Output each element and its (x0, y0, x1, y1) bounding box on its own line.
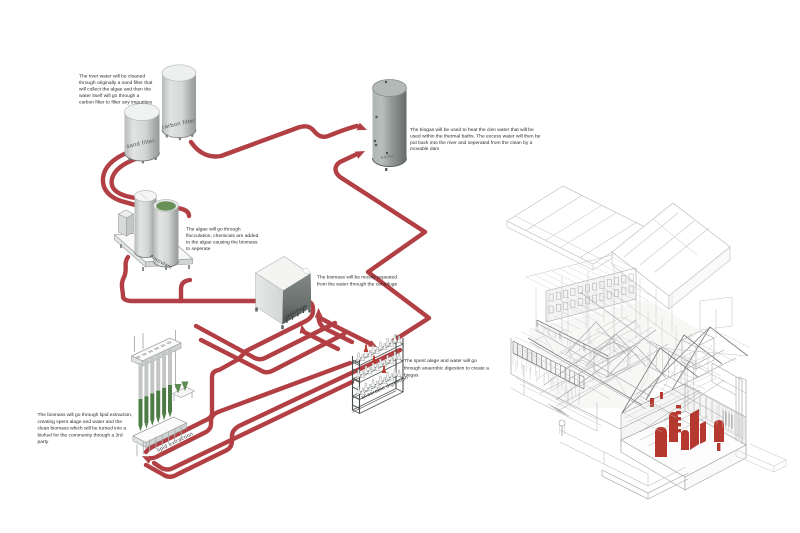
svg-text:flocculation, chemicals are ad: flocculation, chemicals are added (186, 233, 259, 239)
svg-text:to seperate: to seperate (186, 246, 211, 252)
svg-text:put back into the river and se: put back into the river and seperated fr… (410, 140, 533, 146)
svg-text:used within the thermal baths.: used within the thermal baths. The exces… (410, 133, 541, 139)
svg-text:carbon filter to filter any im: carbon filter to filter any impurities (79, 100, 153, 106)
svg-text:The algae will go through: The algae will go through (186, 227, 241, 233)
svg-text:creating spent alage and water: creating spent alage and water and the (38, 419, 123, 425)
svg-text:from the water through the cen: from the water through the centrifuge (317, 282, 397, 288)
svg-text:biofuel for the community thro: biofuel for the community through a 3rd (38, 432, 123, 438)
svg-text:through originally a sand filt: through originally a sand filter that (79, 80, 153, 86)
svg-text:The river water will be cleane: The river water will be cleaned (79, 74, 145, 80)
svg-text:clean biomass which will be tu: clean biomass which will be turned into … (38, 426, 127, 432)
svg-text:party: party (38, 439, 49, 445)
svg-text:water itself will go through a: water itself will go through a (79, 93, 140, 99)
svg-text:The biomass will be mostly sep: The biomass will be mostly sepeated (317, 275, 397, 281)
svg-text:through anaerobic digestion to: through anaerobic digestion to create a (404, 365, 489, 371)
svg-text:The biomass will go through li: The biomass will go through lipid extrac… (38, 412, 133, 418)
svg-text:The spent alage and water will: The spent alage and water will go (404, 358, 477, 364)
svg-text:will collect the algae and the: will collect the algae and then the (79, 87, 151, 93)
svg-text:to the algae causing the bioma: to the algae causing the biomass (186, 240, 258, 246)
svg-text:movable dam: movable dam (410, 146, 439, 152)
svg-text:The biogas will be used to hea: The biogas will be used to heat the clen… (410, 127, 534, 133)
